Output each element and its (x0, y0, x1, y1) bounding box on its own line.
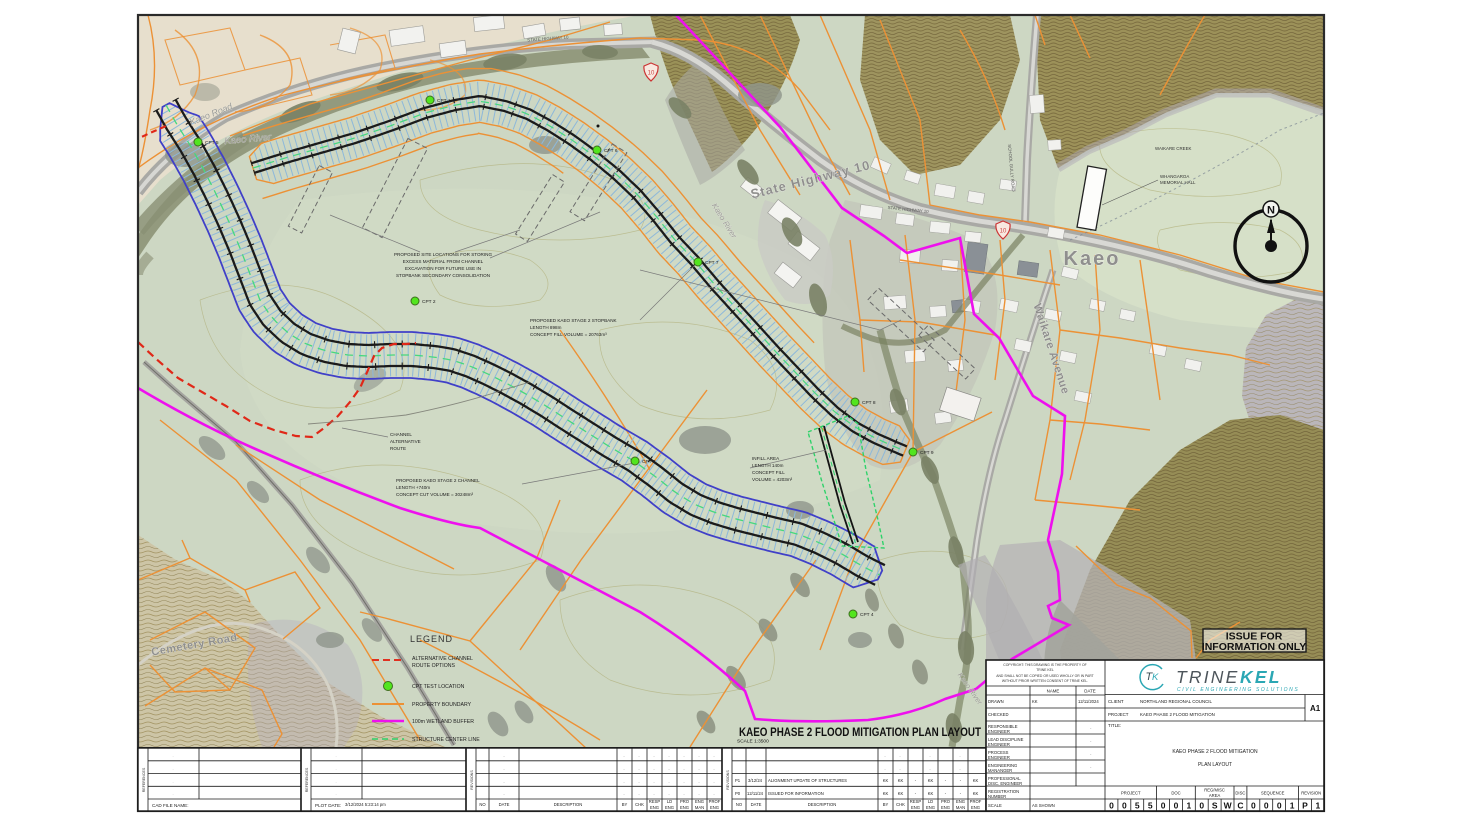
svg-text:.: . (172, 766, 173, 771)
svg-text:VOLUME = 4203m³: VOLUME = 4203m³ (752, 477, 793, 482)
svg-text:TRINE KEL: TRINE KEL (1036, 668, 1054, 672)
svg-text:LEGEND: LEGEND (410, 634, 453, 644)
svg-text:AND SHALL NOT BE COPIED OR USE: AND SHALL NOT BE COPIED OR USED WHOLLY O… (996, 674, 1094, 678)
svg-text:REFERENCES: REFERENCES (142, 767, 146, 792)
svg-text:DISC: DISC (1235, 791, 1245, 796)
svg-text:12/11/24: 12/11/24 (747, 791, 764, 796)
svg-text:INFORMATION ONLY: INFORMATION ONLY (1202, 641, 1306, 653)
svg-text:NO: NO (736, 802, 743, 807)
svg-text:WAIKARE CREEK: WAIKARE CREEK (1155, 146, 1192, 151)
svg-text:SEQUENCE: SEQUENCE (1261, 791, 1285, 796)
svg-text:12/11/2024: 12/11/2024 (1078, 699, 1099, 704)
svg-text:TITLE:: TITLE: (1108, 723, 1121, 728)
svg-text:1: 1 (1187, 801, 1192, 811)
svg-text:SCALE 1:3500: SCALE 1:3500 (737, 739, 769, 745)
svg-text:Kaeo: Kaeo (1064, 248, 1121, 270)
svg-text:P: P (1302, 801, 1308, 811)
svg-text:RESP: RESP (649, 799, 661, 804)
svg-text:WHANGAROA: WHANGAROA (1160, 174, 1189, 179)
svg-text:CPT 6: CPT 6 (604, 148, 618, 154)
svg-text:WITHOUT PRIOR WRITTEN CONSENT: WITHOUT PRIOR WRITTEN CONSENT OF TRINE K… (1002, 679, 1088, 683)
svg-text:CLIENT: CLIENT (1108, 699, 1124, 704)
svg-text:KAEO PHASE 2 FLOOD MITIGATION: KAEO PHASE 2 FLOOD MITIGATION PLAN LAYOU… (739, 725, 982, 739)
svg-text:10: 10 (1000, 229, 1007, 235)
svg-text:0: 0 (1174, 801, 1179, 811)
svg-text:BY: BY (622, 802, 628, 807)
svg-text:PROPERTY BOUNDARY: PROPERTY BOUNDARY (412, 702, 472, 708)
svg-text:1: 1 (1316, 801, 1321, 811)
svg-text:3/12/2024 5:23:14 pm: 3/12/2024 5:23:14 pm (345, 802, 386, 807)
svg-text:1: 1 (1290, 801, 1295, 811)
svg-text:.: . (172, 779, 173, 784)
svg-text:PROJECT: PROJECT (1121, 791, 1141, 796)
svg-text:KAEO PHASE 2 FLOOD MITIGATION: KAEO PHASE 2 FLOOD MITIGATION (1172, 749, 1258, 755)
svg-text:DRAWN: DRAWN (988, 699, 1004, 704)
svg-text:ENG: ENG (695, 799, 704, 804)
svg-text:DISC. ENGINEER: DISC. ENGINEER (988, 781, 1022, 786)
svg-text:COPYRIGHT: THIS DRAWING IS THE: COPYRIGHT: THIS DRAWING IS THE PROPERTY … (1003, 663, 1086, 667)
svg-text:KK: KK (928, 791, 934, 796)
svg-text:REVISIONS: REVISIONS (470, 770, 474, 790)
svg-text:ENG: ENG (710, 805, 719, 810)
svg-text:CAD FILE NAME:: CAD FILE NAME: (152, 803, 189, 808)
svg-text:0: 0 (1264, 801, 1269, 811)
svg-text:NAME: NAME (1047, 689, 1060, 694)
svg-text:100m WETLAND BUFFER: 100m WETLAND BUFFER (412, 719, 474, 725)
svg-text:REG/MISC: REG/MISC (1204, 788, 1225, 793)
svg-text:TRINE: TRINE (1176, 667, 1240, 687)
svg-text:NUMBER: NUMBER (988, 794, 1006, 799)
svg-text:C: C (1237, 801, 1243, 811)
svg-text:EXCAVATION FOR FUTURE USE IN: EXCAVATION FOR FUTURE USE IN (405, 266, 481, 271)
svg-text:NORTHLAND REGIONAL COUNCIL: NORTHLAND REGIONAL COUNCIL (1140, 699, 1213, 704)
svg-text:CPT 3: CPT 3 (642, 459, 656, 465)
svg-text:CPT 2: CPT 2 (422, 299, 436, 305)
svg-text:REVISION: REVISION (1301, 791, 1321, 796)
svg-text:ENGINEER: ENGINEER (988, 755, 1010, 760)
svg-text:P1: P1 (735, 778, 741, 783)
svg-text:10: 10 (648, 71, 655, 77)
svg-text:DOC: DOC (1171, 791, 1180, 796)
svg-text:KAEO PHASE 2 FLOOD MITIGATION: KAEO PHASE 2 FLOOD MITIGATION (1140, 712, 1215, 717)
svg-text:5: 5 (1148, 801, 1153, 811)
svg-text:DATE: DATE (499, 802, 510, 807)
svg-text:PRO: PRO (941, 799, 951, 804)
svg-text:RESP: RESP (910, 799, 922, 804)
svg-text:STRUCTURE CENTER LINE: STRUCTURE CENTER LINE (412, 737, 480, 743)
svg-text:KK: KK (883, 778, 889, 783)
svg-text:EXCESS MATERIAL FROM CHANNEL: EXCESS MATERIAL FROM CHANNEL (403, 259, 484, 264)
svg-text:CPT 4: CPT 4 (860, 612, 874, 618)
svg-text:ENGINEER: ENGINEER (988, 742, 1010, 747)
svg-text:LD: LD (667, 799, 672, 804)
svg-text:.: . (172, 791, 173, 796)
svg-text:SCALE: SCALE (988, 803, 1002, 808)
svg-text:ENG: ENG (926, 805, 935, 810)
svg-text:PROPOSED KAEO STAGE 2 STOPBANK: PROPOSED KAEO STAGE 2 STOPBANK (530, 318, 618, 323)
svg-text:CHK: CHK (896, 802, 905, 807)
svg-text:CHK: CHK (635, 802, 644, 807)
svg-text:KK: KK (973, 791, 979, 796)
svg-text:BY: BY (883, 802, 889, 807)
svg-text:CHANNEL: CHANNEL (390, 432, 412, 437)
svg-text:CONCEPT FILL VOLUME = 20763m³: CONCEPT FILL VOLUME = 20763m³ (530, 332, 607, 337)
svg-text:KEL: KEL (1240, 667, 1282, 687)
svg-text:0: 0 (1122, 801, 1127, 811)
svg-text:ENG: ENG (956, 799, 965, 804)
svg-text:PROPOSED SITE LOCATIONS FOR ST: PROPOSED SITE LOCATIONS FOR STORING (394, 252, 493, 257)
svg-text:AREA: AREA (1209, 793, 1221, 798)
svg-text:DATE: DATE (751, 802, 762, 807)
svg-text:N: N (1267, 205, 1275, 217)
svg-text:CIVIL ENGINEERING SOLUTIONS: CIVIL ENGINEERING SOLUTIONS (1177, 687, 1299, 693)
svg-text:W: W (1224, 801, 1233, 811)
svg-text:ENG: ENG (971, 805, 980, 810)
svg-text:PROPOSED KAEO STAGE 2 CHANNEL: PROPOSED KAEO STAGE 2 CHANNEL (396, 478, 480, 483)
svg-text:0: 0 (1199, 801, 1204, 811)
svg-text:0: 0 (1109, 801, 1114, 811)
svg-text:CPT 8: CPT 8 (862, 400, 876, 406)
svg-text:CONCEPT FILL: CONCEPT FILL (752, 470, 785, 475)
svg-text:KK: KK (973, 778, 979, 783)
svg-text:ROUTE OPTIONS: ROUTE OPTIONS (412, 663, 455, 669)
svg-text:PLOT DATE:: PLOT DATE: (315, 803, 341, 808)
svg-text:LENGTH +740m: LENGTH +740m (396, 485, 430, 490)
svg-text:ENGINEER: ENGINEER (988, 729, 1010, 734)
svg-text:K: K (1152, 672, 1159, 683)
svg-text:ALTERNATIVE CHANNEL: ALTERNATIVE CHANNEL (412, 656, 473, 662)
svg-text:MAN: MAN (695, 805, 704, 810)
svg-text:PROF: PROF (709, 799, 721, 804)
svg-text:LENGTH 140m: LENGTH 140m (752, 463, 784, 468)
svg-text:LD: LD (928, 799, 933, 804)
svg-text:.: . (335, 766, 336, 771)
svg-text:3/12/24: 3/12/24 (748, 778, 763, 783)
svg-text:KK: KK (928, 778, 934, 783)
svg-text:ALTERNATIVE: ALTERNATIVE (390, 439, 421, 444)
svg-text:ENG: ENG (680, 805, 689, 810)
svg-text:ISSUED FOR INFORMATION: ISSUED FOR INFORMATION (768, 791, 824, 796)
svg-text:DESCRIPTION: DESCRIPTION (554, 802, 583, 807)
svg-text:ROUTE: ROUTE (390, 446, 406, 451)
svg-text:A1: A1 (1310, 704, 1321, 713)
svg-text:.: . (335, 791, 336, 796)
svg-text:MANANGER: MANANGER (988, 768, 1012, 773)
svg-text:ENG: ENG (650, 805, 659, 810)
svg-text:CPT 9: CPT 9 (920, 450, 934, 456)
svg-text:CPT TEST LOCATION: CPT TEST LOCATION (412, 684, 465, 690)
svg-text:PRO: PRO (680, 799, 690, 804)
svg-text:0: 0 (1161, 801, 1166, 811)
svg-text:S: S (1212, 801, 1218, 811)
svg-text:KK: KK (1032, 699, 1038, 704)
svg-text:DESCRIPTION: DESCRIPTION (808, 802, 837, 807)
svg-text:STOPBANK SECONDARY CONSOLIDATI: STOPBANK SECONDARY CONSOLIDATION (396, 273, 490, 278)
svg-text:.: . (335, 779, 336, 784)
svg-text:.: . (335, 753, 336, 758)
svg-text:PROJECT: PROJECT (1108, 712, 1129, 717)
svg-text:REFERENCES: REFERENCES (305, 767, 309, 792)
svg-text:.: . (172, 753, 173, 758)
svg-text:CHECKED: CHECKED (988, 712, 1008, 717)
svg-text:MAN: MAN (956, 805, 965, 810)
svg-text:MEMORIAL HALL: MEMORIAL HALL (1160, 180, 1196, 185)
svg-text:INFILL AREA: INFILL AREA (752, 456, 780, 461)
svg-text:CPT 1: CPT 1 (437, 98, 451, 104)
svg-text:REVISIONS: REVISIONS (726, 770, 730, 790)
svg-text:ENG: ENG (941, 805, 950, 810)
svg-text:LENGTH 898m: LENGTH 898m (530, 325, 562, 330)
svg-text:KK: KK (883, 791, 889, 796)
svg-text:KK: KK (898, 791, 904, 796)
svg-text:CPT 5: CPT 5 (205, 140, 219, 146)
svg-text:PLAN LAYOUT: PLAN LAYOUT (1198, 762, 1232, 768)
svg-text:NO: NO (479, 802, 486, 807)
svg-text:5: 5 (1135, 801, 1140, 811)
svg-text:ALIGNMENT UPDATE OF STRUCTURES: ALIGNMENT UPDATE OF STRUCTURES (768, 778, 847, 783)
svg-text:ENG: ENG (665, 805, 674, 810)
svg-text:ENG: ENG (911, 805, 920, 810)
svg-text:CONCEPT CUT VOLUME = 30248m³: CONCEPT CUT VOLUME = 30248m³ (396, 492, 474, 497)
svg-text:0: 0 (1277, 801, 1282, 811)
svg-text:CPT 7: CPT 7 (705, 260, 719, 266)
svg-text:P0: P0 (735, 791, 741, 796)
svg-text:DATE: DATE (1084, 689, 1095, 694)
svg-text:PROF: PROF (970, 799, 982, 804)
svg-text:KK: KK (898, 778, 904, 783)
svg-text:0: 0 (1251, 801, 1256, 811)
svg-text:AS SHOWN: AS SHOWN (1032, 803, 1055, 808)
